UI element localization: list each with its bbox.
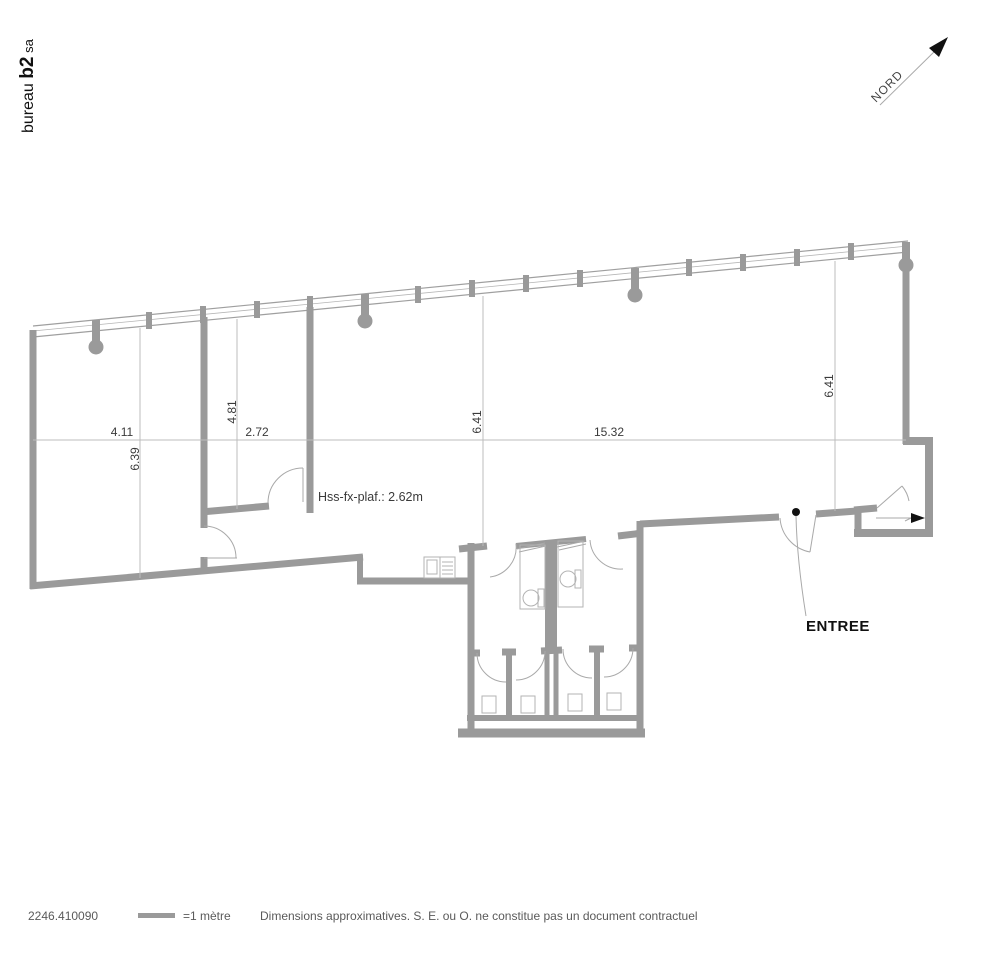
door-arc [516, 651, 545, 680]
floor-plan-page: bureau b2 sa NORD [0, 0, 982, 955]
kitchen-counter-icon [424, 557, 455, 578]
toilet-icon [560, 570, 581, 588]
door-arc [477, 653, 506, 682]
north-label: NORD [868, 67, 906, 105]
scale-label: =1 mètre [183, 909, 231, 923]
logo-word-sa: sa [21, 38, 36, 56]
wall-bottom-entrance [816, 511, 857, 514]
door-arc [204, 526, 236, 558]
entrance-leader-line [796, 516, 806, 616]
wall-bottom-main [640, 517, 779, 524]
annotations: Hss-fx-plaf.: 2.62m ENTREE [318, 490, 870, 635]
door-arc [490, 544, 516, 577]
facade-column [89, 340, 104, 355]
dimensions: 4.11 2.72 15.32 6.39 4.81 6.41 6.41 [33, 261, 906, 578]
entrance-door-dot [792, 508, 800, 516]
door-arc [902, 486, 909, 501]
shower-tray [521, 696, 535, 713]
door-arc [563, 649, 592, 678]
toilet-bowl [560, 571, 576, 587]
scale-bar [138, 913, 175, 918]
drawing-reference: 2246.410090 [28, 909, 98, 923]
logo: bureau b2 sa [17, 38, 38, 133]
dimension-label: 15.32 [594, 425, 624, 439]
logo-word-bureau: bureau [20, 79, 37, 133]
shower-tray [607, 693, 621, 710]
shower-tray [482, 696, 496, 713]
dimension-label: 4.81 [225, 400, 239, 424]
dimension-label: 2.72 [245, 425, 269, 439]
vestibule-arrow-icon [911, 513, 925, 523]
footer: 2246.410090 =1 mètre Dimensions approxim… [28, 909, 698, 923]
walls [30, 256, 933, 737]
toilet-icon [523, 589, 544, 607]
ceiling-height-note: Hss-fx-plaf.: 2.62m [318, 490, 423, 504]
entrance-door-arc [780, 518, 810, 552]
entrance-label: ENTREE [806, 618, 870, 635]
floor-plan-drawing: bureau b2 sa NORD [0, 0, 982, 955]
door-arc [590, 540, 623, 569]
north-arrow: NORD [868, 37, 948, 105]
kitchen-sink [427, 560, 437, 574]
shower-tray [568, 694, 582, 711]
logo-word-b2: b2 [17, 57, 38, 79]
door-leaf [877, 486, 902, 508]
wall-wc-top-a [459, 546, 487, 549]
facade-window-band [33, 241, 914, 355]
wall-stub [541, 650, 562, 651]
facade-column [628, 288, 643, 303]
door-arc [604, 648, 633, 677]
fixtures [424, 541, 621, 713]
dimension-label: 6.39 [128, 447, 142, 471]
entrance-door-leaf [810, 515, 816, 552]
dimension-label: 6.41 [470, 410, 484, 434]
wc-cubicle-outline [520, 545, 545, 609]
door-leaf [559, 544, 586, 550]
vestibule-arrow-line [876, 518, 911, 521]
disclaimer-text: Dimensions approximatives. S. E. ou O. n… [260, 909, 698, 923]
wall-room2-bottom [201, 506, 269, 512]
dimension-label: 4.11 [111, 425, 134, 439]
facade-column [358, 314, 373, 329]
logo-text: bureau b2 sa [17, 38, 38, 133]
wall-bottom-left [30, 557, 363, 586]
wall-wc-top-c [618, 533, 643, 536]
dimension-label: 6.41 [822, 374, 836, 398]
toilet-bowl [523, 590, 539, 606]
door-arc [268, 468, 303, 503]
